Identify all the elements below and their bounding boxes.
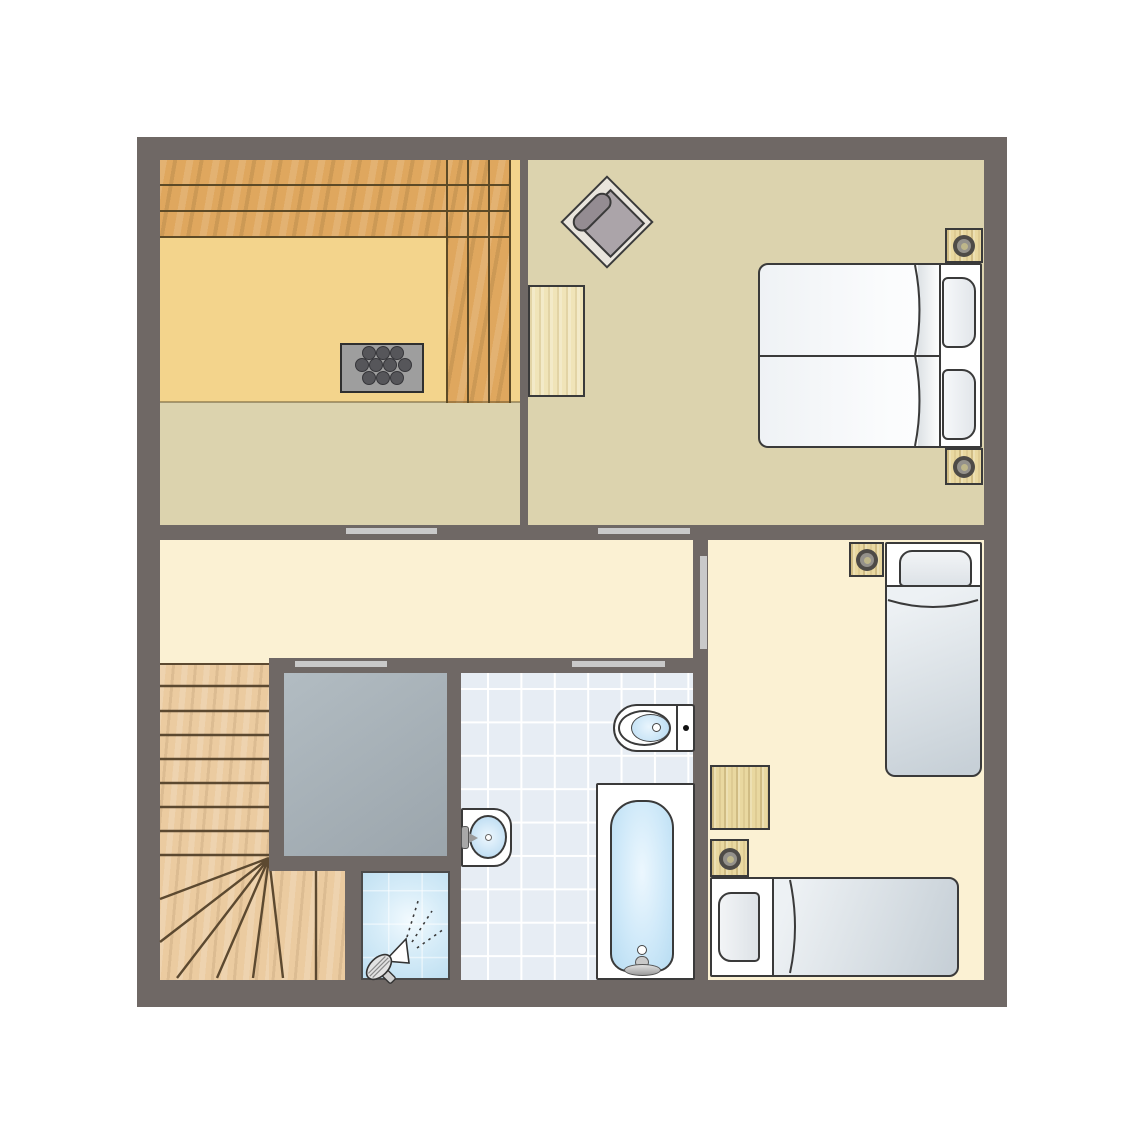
faucet-plate [624, 964, 661, 976]
toilet-water [631, 714, 670, 742]
wall-mid-horizontal [160, 525, 984, 540]
lamp-icon [953, 235, 975, 257]
bench-line [467, 160, 469, 403]
mattress-junction-line [760, 355, 939, 357]
mattress [772, 877, 959, 977]
lamp-icon [953, 456, 975, 478]
toilet-drain [652, 723, 661, 732]
door-hall-to-void [295, 661, 387, 667]
sauna-bench-right [446, 160, 511, 403]
shower-cell [361, 871, 450, 980]
heater-stone [376, 371, 390, 385]
floor-plan [0, 0, 1145, 1145]
washbasin [461, 808, 512, 867]
side-table [710, 765, 770, 830]
double-bed [758, 263, 982, 448]
nightstand [849, 542, 884, 577]
cistern-line [676, 706, 678, 750]
bathtub [596, 783, 695, 980]
pillow [718, 892, 760, 962]
void-stairwell [284, 673, 447, 856]
single-bed-vertical [885, 542, 982, 773]
mattress [885, 585, 982, 777]
nightstand [945, 448, 983, 485]
wall-stairs-shower [345, 871, 361, 980]
pillow [942, 369, 976, 440]
desk [528, 285, 585, 397]
pillow [899, 550, 972, 587]
tap [461, 826, 469, 849]
heater-stone [398, 358, 412, 372]
bench-line [160, 236, 511, 238]
heater-stone [390, 371, 404, 385]
lamp-icon [719, 848, 741, 870]
door-hall-to-bathroom [572, 661, 665, 667]
lamp-icon [856, 549, 878, 571]
hallway-floor [160, 540, 693, 658]
toilet [613, 704, 695, 752]
pillow [942, 277, 976, 348]
bench-line [488, 160, 490, 403]
shower-head-icon [363, 873, 452, 982]
mattress-edge-line [939, 265, 941, 446]
bench-line [160, 210, 511, 212]
nightstand [710, 839, 749, 877]
sauna-platform-edge [160, 401, 520, 403]
heater-stone [355, 358, 369, 372]
flush-button [683, 725, 689, 731]
bench-line [160, 184, 511, 186]
door-hall-to-twin-bedroom [700, 556, 707, 649]
bench-line [446, 160, 448, 403]
bench-line [509, 160, 511, 403]
single-bed-horizontal [710, 877, 957, 977]
basin-drain [485, 834, 492, 841]
wall-sauna-bedroom-divider [520, 160, 528, 525]
door-hall-to-sauna [346, 528, 437, 534]
door-hall-to-double-bedroom [598, 528, 690, 534]
heater-stone [383, 358, 397, 372]
nightstand [945, 228, 983, 263]
heater-stone [369, 358, 383, 372]
tub-drain [637, 945, 647, 955]
sauna-heater [340, 343, 424, 393]
heater-stone [362, 371, 376, 385]
